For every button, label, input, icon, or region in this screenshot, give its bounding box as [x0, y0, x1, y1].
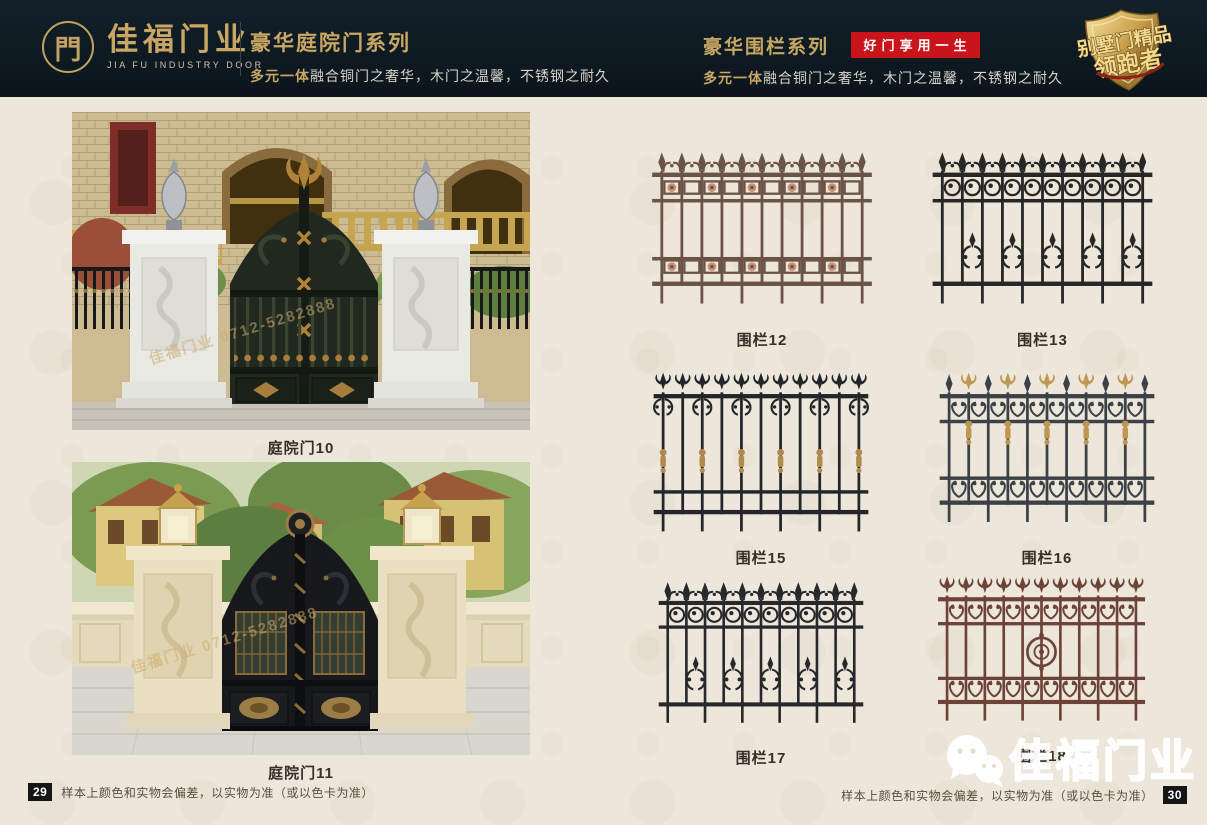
fence-12-illustration	[640, 148, 884, 322]
fence-card-16: 围栏16	[926, 370, 1168, 566]
gate-photo-card-11: 佳福门业 0712-5282888 庭院门11	[72, 462, 530, 783]
slogan-badge: 好门享用一生	[851, 32, 980, 58]
series-left-title: 豪华庭院门系列	[250, 27, 411, 57]
shield-badge-icon: 别墅门精品 领跑者	[1063, 6, 1187, 96]
series-right-titlerow: 豪华围栏系列 好门享用一生	[703, 32, 1063, 59]
fence-caption: 围栏17	[641, 747, 881, 768]
disclaimer-left: 样本上颜色和实物会偏差，以实物为准（或以色卡为准）	[61, 784, 374, 801]
series-right-subtitle: 多元一体融合铜门之奢华，木门之温馨，不锈钢之耐久	[703, 68, 1063, 88]
fence-16-illustration	[926, 370, 1168, 540]
page-number-left: 29	[28, 783, 52, 801]
series-right-title: 豪华围栏系列	[703, 32, 829, 59]
disclaimer-right: 样本上颜色和实物会偏差，以实物为准（或以色卡为准）	[841, 787, 1154, 804]
series-left: 豪华庭院门系列 多元一体融合铜门之奢华，木门之温馨，不锈钢之耐久	[250, 27, 610, 86]
gate-photo-11-illustration	[72, 462, 530, 755]
logo-glyph: 門	[55, 28, 82, 67]
fence-card-12: 围栏12	[640, 148, 884, 348]
fence-15-illustration	[642, 370, 880, 540]
fence-caption: 围栏16	[926, 547, 1168, 568]
footer-left: 29 样本上颜色和实物会偏差，以实物为准（或以色卡为准）	[28, 783, 374, 801]
fence-card-15: 围栏15	[642, 370, 880, 566]
gate-photo-10-illustration	[72, 112, 530, 430]
series-left-subtitle-em: 多元一体	[250, 68, 310, 84]
series-right-subtitle-rest: 融合铜门之奢华，木门之温馨，不锈钢之耐久	[763, 70, 1063, 86]
fence-18-illustration	[911, 574, 1172, 738]
gate-photo-card-10: 佳福门业 0712-5282888 庭院门10	[72, 112, 530, 458]
page-number-right: 30	[1163, 786, 1187, 804]
fence-card-18: 围栏18	[911, 574, 1172, 764]
catalog-spread: 門 佳福门业 JIA FU INDUSTRY DOOR 豪华庭院门系列 多元一体…	[0, 0, 1207, 825]
header-divider	[240, 22, 241, 76]
series-right-subtitle-em: 多元一体	[703, 70, 763, 86]
photo-caption: 庭院门10	[72, 437, 530, 458]
series-right: 豪华围栏系列 好门享用一生 多元一体融合铜门之奢华，木门之温馨，不锈钢之耐久	[703, 32, 1063, 88]
header-bar: 門 佳福门业 JIA FU INDUSTRY DOOR 豪华庭院门系列 多元一体…	[0, 0, 1207, 97]
series-left-subtitle-rest: 融合铜门之奢华，木门之温馨，不锈钢之耐久	[310, 68, 610, 84]
footer-right: 样本上颜色和实物会偏差，以实物为准（或以色卡为准） 30	[841, 786, 1187, 804]
fence-caption: 围栏12	[640, 329, 884, 350]
fence-card-13: 围栏13	[921, 148, 1164, 348]
door-logo-icon: 門	[42, 21, 94, 73]
fence-caption: 围栏15	[642, 547, 880, 568]
series-left-subtitle: 多元一体融合铜门之奢华，木门之温馨，不锈钢之耐久	[250, 66, 610, 86]
photo-caption: 庭院门11	[72, 762, 530, 783]
fence-caption: 围栏13	[921, 329, 1164, 350]
fence-caption: 围栏18	[911, 745, 1172, 766]
fence-13-illustration	[921, 148, 1164, 322]
fence-17-illustration	[641, 578, 881, 740]
fence-card-17: 围栏17	[641, 578, 881, 766]
brand-logo: 門 佳福门业 JIA FU INDUSTRY DOOR	[42, 21, 264, 73]
